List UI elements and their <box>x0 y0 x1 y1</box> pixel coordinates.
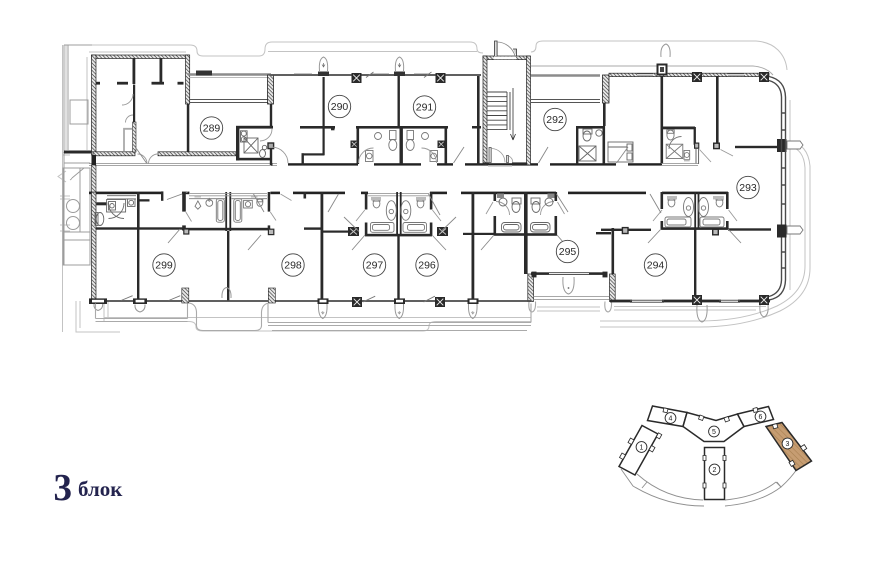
svg-text:3: 3 <box>786 441 790 448</box>
svg-text:2: 2 <box>713 467 717 474</box>
svg-text:5: 5 <box>712 429 716 436</box>
svg-text:291: 291 <box>416 102 434 114</box>
svg-text:6: 6 <box>759 414 763 421</box>
svg-text:298: 298 <box>284 260 302 272</box>
svg-text:292: 292 <box>546 114 564 126</box>
svg-text:290: 290 <box>331 101 349 113</box>
svg-text:289: 289 <box>203 123 221 135</box>
svg-text:4: 4 <box>669 416 673 423</box>
svg-text:295: 295 <box>559 246 577 258</box>
svg-text:294: 294 <box>647 260 665 272</box>
svg-text:296: 296 <box>418 260 436 272</box>
svg-text:299: 299 <box>155 260 173 272</box>
svg-text:293: 293 <box>739 182 757 194</box>
svg-text:1: 1 <box>640 445 644 452</box>
svg-text:3: 3 <box>54 467 73 509</box>
svg-text:блок: блок <box>78 477 123 501</box>
svg-text:297: 297 <box>366 260 384 272</box>
